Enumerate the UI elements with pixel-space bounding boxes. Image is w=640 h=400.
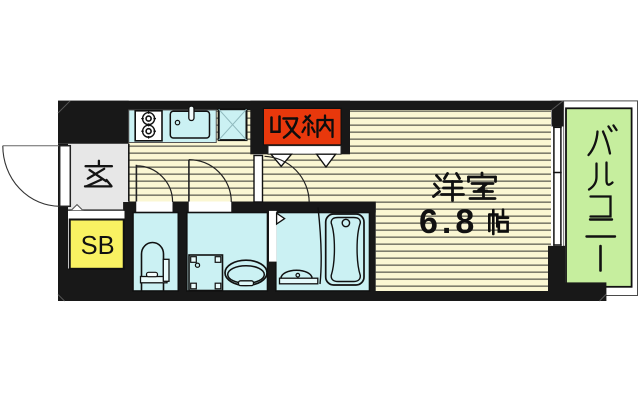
svg-text:6.8: 6.8 [419, 203, 478, 241]
svg-text:SB: SB [81, 232, 115, 260]
